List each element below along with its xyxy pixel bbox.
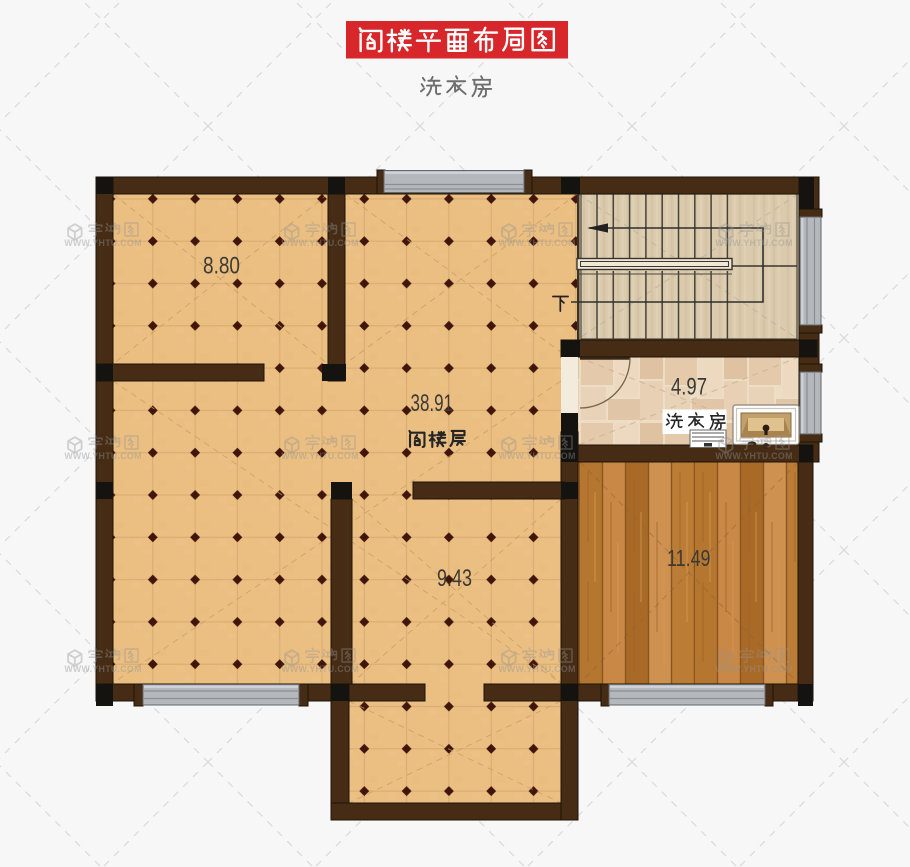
svg-text:11.49: 11.49 <box>667 545 711 571</box>
svg-text:4.97: 4.97 <box>671 374 707 401</box>
svg-text:9.43: 9.43 <box>437 565 472 592</box>
svg-text:38.91: 38.91 <box>411 390 454 417</box>
svg-text:8.80: 8.80 <box>203 253 240 280</box>
